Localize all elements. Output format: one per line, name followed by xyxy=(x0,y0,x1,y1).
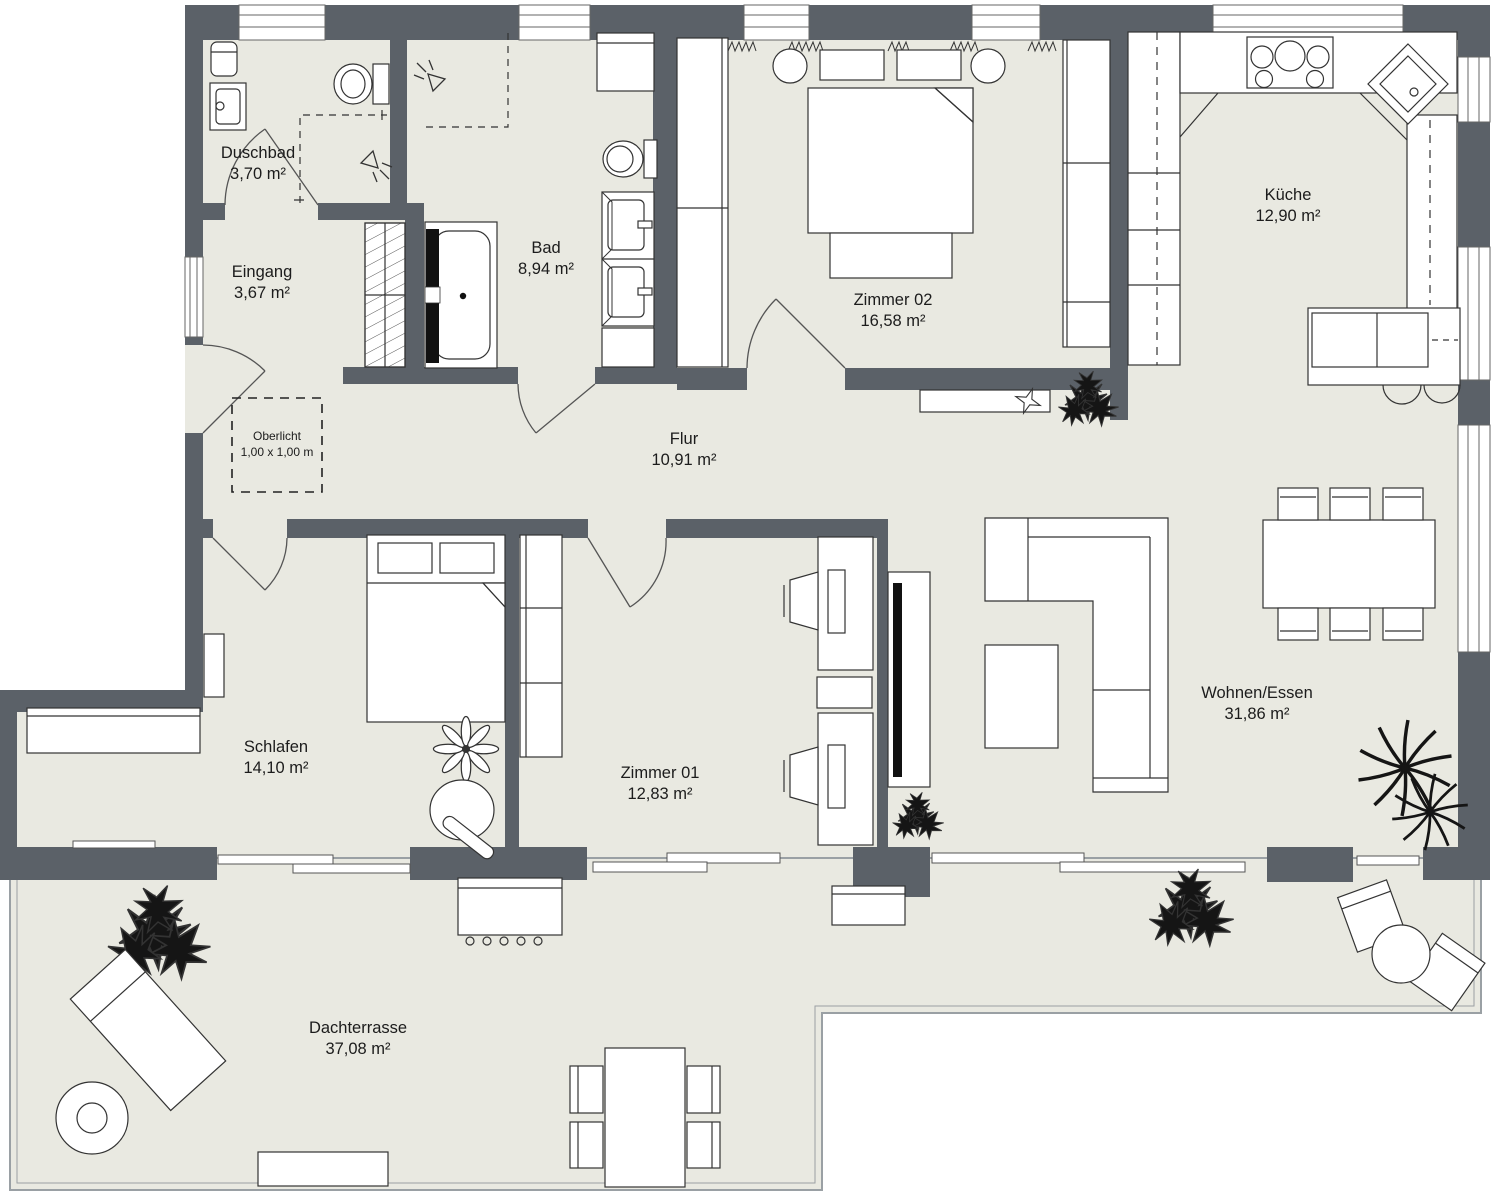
window-right-1 xyxy=(1458,57,1490,122)
desk-chair-icon xyxy=(790,747,818,805)
wall-duschbad-right xyxy=(390,5,407,220)
window-right-2 xyxy=(1458,247,1490,380)
sliding-door-pane xyxy=(1060,862,1245,872)
storage-box-icon xyxy=(832,886,905,925)
grill-icon xyxy=(458,878,562,935)
chair-icon xyxy=(1278,488,1318,520)
faucet-icon xyxy=(638,221,652,228)
wall-bottom-seg5 xyxy=(1423,847,1487,880)
toilet-tank-icon xyxy=(373,64,389,104)
nightstand-icon xyxy=(971,49,1005,83)
wall-bad-zimmer02 xyxy=(653,5,677,367)
wall-zimmer02-bottom-a xyxy=(677,368,747,390)
window-top-4 xyxy=(972,5,1040,40)
wall-left-lower xyxy=(185,433,203,693)
coffee-table-icon xyxy=(985,645,1058,748)
sliding-door-pane xyxy=(1357,856,1419,865)
chair-icon xyxy=(570,1066,603,1113)
chair-icon xyxy=(1330,488,1370,520)
kitchen-counter-right xyxy=(1407,115,1457,310)
pillow-icon xyxy=(820,50,884,80)
wall-bad-bottom-a xyxy=(343,367,518,384)
chair-icon xyxy=(687,1066,720,1113)
window-top-3 xyxy=(744,5,809,40)
terrace-floor xyxy=(10,858,1481,1190)
wardrobe-icon xyxy=(1063,40,1110,347)
monitor-icon xyxy=(828,570,845,633)
window-sill xyxy=(73,841,155,848)
bistro-table-icon xyxy=(1372,925,1430,983)
toilet-tank-icon xyxy=(644,140,657,178)
radiator-icon xyxy=(204,634,224,697)
dining-table-icon xyxy=(1263,520,1435,608)
window-right-3 xyxy=(1458,425,1490,652)
window-top-2 xyxy=(519,5,590,40)
chair-icon xyxy=(1383,608,1423,640)
window-top-1 xyxy=(239,5,325,40)
pillow-icon xyxy=(440,543,494,573)
wall-flur-a xyxy=(203,519,213,538)
wall-closet xyxy=(405,203,424,384)
chair-icon xyxy=(570,1122,603,1168)
wall-schlafen-zimmer01 xyxy=(505,519,519,847)
apartment-floor xyxy=(0,5,1490,880)
outdoor-table-icon xyxy=(605,1048,685,1187)
pillow-icon xyxy=(378,543,432,573)
washbasin-icon xyxy=(211,42,237,76)
floor-plan-page: Duschbad3,70 m² Eingang3,67 m² Bad8,94 m… xyxy=(0,0,1500,1198)
entrance-closet xyxy=(365,223,405,367)
chair-icon xyxy=(1383,488,1423,520)
chair-icon xyxy=(1278,608,1318,640)
tv-icon xyxy=(893,583,902,777)
window-entrance-sidelight xyxy=(185,257,203,337)
floor-plan-canvas: Duschbad3,70 m² Eingang3,67 m² Bad8,94 m… xyxy=(0,0,1500,1198)
chair-icon xyxy=(687,1122,720,1168)
sliding-door-pane xyxy=(593,862,707,872)
double-bed-icon xyxy=(808,88,973,233)
sideboard-icon xyxy=(27,708,200,753)
wall-left-jamb xyxy=(185,337,203,345)
side-table-icon xyxy=(56,1082,128,1154)
wall-zimmer01-wohnen xyxy=(877,519,888,847)
shelf-icon xyxy=(817,677,872,708)
wall-bad-bottom-b xyxy=(595,367,677,384)
desk-chair-icon xyxy=(790,572,818,630)
wall-duschbad-bottom-b xyxy=(318,203,407,220)
nightstand-icon xyxy=(773,49,807,83)
wall-kitchen-left xyxy=(1110,5,1128,420)
plant-icon xyxy=(433,716,498,781)
wardrobe-icon xyxy=(677,38,728,367)
monitor-icon xyxy=(828,745,845,808)
kitchen-counter-left xyxy=(1128,32,1180,365)
kitchen-bar-icon xyxy=(1308,308,1460,385)
wall-flur-c xyxy=(666,519,888,538)
bed-bench-icon xyxy=(830,233,952,278)
bath-cabinet-icon xyxy=(602,328,654,367)
sliding-door-pane xyxy=(218,855,333,864)
wall-duschbad-bottom-a xyxy=(185,203,225,220)
sliding-door-pane xyxy=(293,864,410,873)
wall-bottom-seg1 xyxy=(0,847,217,880)
bench-icon xyxy=(258,1152,388,1186)
faucet-icon xyxy=(638,288,652,295)
chair-icon xyxy=(1330,608,1370,640)
wall-bottom-seg4 xyxy=(1267,847,1353,882)
cooktop-icon xyxy=(1247,37,1333,88)
washing-machine-icon xyxy=(597,33,654,91)
pillow-icon xyxy=(897,50,961,80)
wall-bottom-seg2 xyxy=(410,847,587,880)
